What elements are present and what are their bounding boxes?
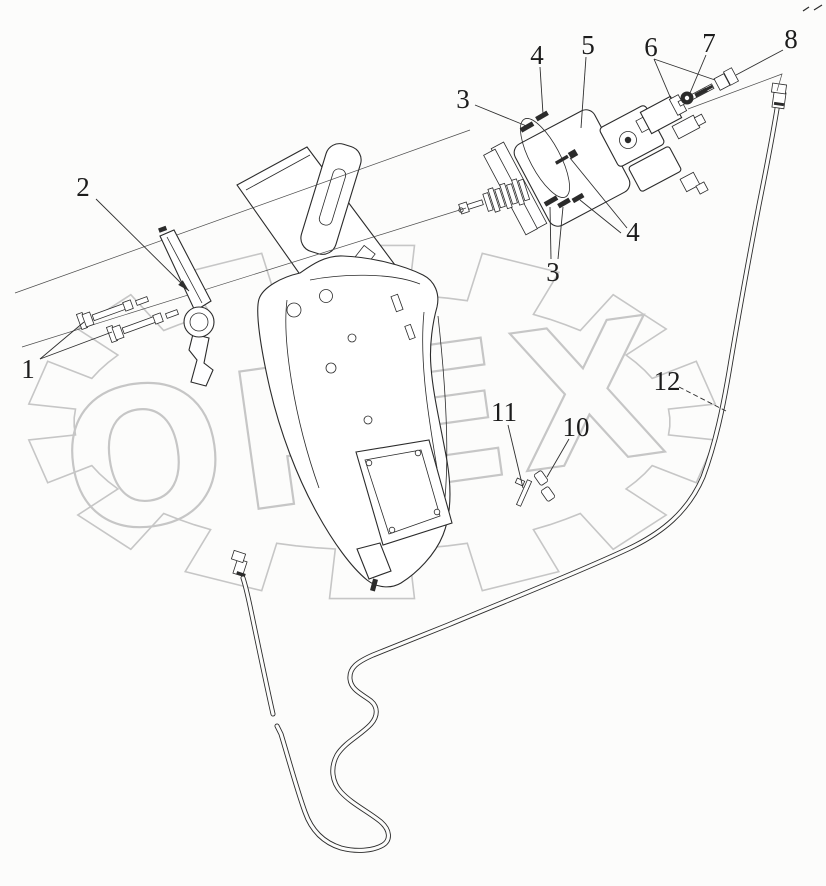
callout-label-1-0: 1 xyxy=(21,354,35,384)
callout-label-2-1: 2 xyxy=(76,172,90,202)
callout-label-5-4: 5 xyxy=(581,30,595,60)
hose-fitting-upper xyxy=(771,83,786,109)
parts-diagram-canvas: OPEX xyxy=(0,0,826,886)
callout-label-10-11: 10 xyxy=(563,412,590,442)
bolt-hole xyxy=(287,303,301,317)
callout-label-6-5: 6 xyxy=(644,32,658,62)
callout-label-3-2: 3 xyxy=(456,84,470,114)
callout-label-7-6: 7 xyxy=(702,28,716,58)
callout-label-4-3: 4 xyxy=(530,40,544,70)
callout-label-8-7: 8 xyxy=(784,24,798,54)
clutch-control-parts-diagram: OPEX xyxy=(0,0,826,886)
bolt-hole xyxy=(320,290,333,303)
callout-label-4-9: 4 xyxy=(626,217,640,247)
callout-label-11-10: 11 xyxy=(491,397,517,427)
callout-label-3-8: 3 xyxy=(546,257,560,287)
callout-label-12-12: 12 xyxy=(654,366,681,396)
